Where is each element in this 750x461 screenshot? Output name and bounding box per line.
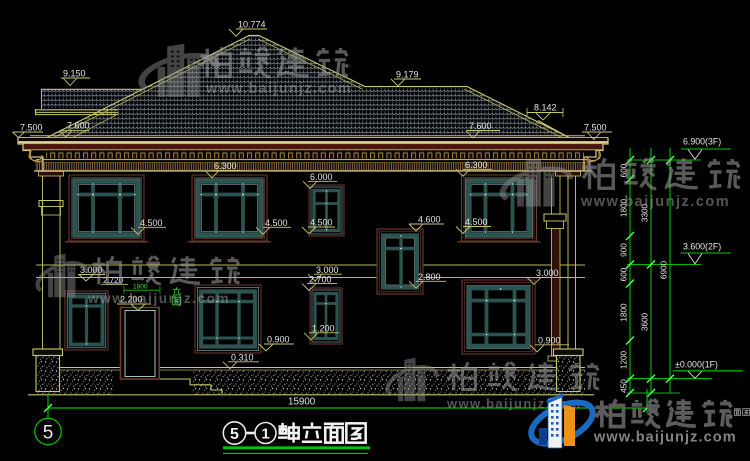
svg-text:9.150: 9.150	[63, 68, 86, 78]
svg-text:1800: 1800	[620, 303, 629, 322]
svg-text:1: 1	[261, 425, 269, 442]
svg-text:4.600: 4.600	[418, 215, 441, 225]
svg-text:4.500: 4.500	[310, 218, 333, 228]
svg-text:6900: 6900	[660, 260, 669, 279]
svg-text:7.500: 7.500	[584, 123, 607, 133]
svg-text:6.900(3F): 6.900(3F)	[683, 137, 721, 147]
svg-text:6.000: 6.000	[310, 172, 333, 182]
svg-text:3.600(2F): 3.600(2F)	[683, 242, 721, 252]
svg-text:7.600: 7.600	[67, 121, 90, 131]
svg-text:www.baijunjz.com: www.baijunjz.com	[205, 81, 352, 97]
svg-text:5: 5	[230, 426, 239, 443]
svg-text:1800: 1800	[133, 284, 148, 291]
svg-text:4.500: 4.500	[265, 218, 288, 228]
svg-text:0.310: 0.310	[231, 352, 254, 362]
svg-text:www.baijunjz.com: www.baijunjz.com	[580, 194, 730, 210]
svg-text:6.300: 6.300	[465, 160, 488, 170]
svg-text:8.142: 8.142	[534, 103, 557, 113]
svg-text:15900: 15900	[288, 397, 316, 408]
svg-text:1.200: 1.200	[312, 323, 335, 333]
svg-text:4.500: 4.500	[465, 217, 488, 227]
svg-text:1200: 1200	[620, 350, 629, 369]
svg-text:0.900: 0.900	[267, 335, 290, 345]
svg-text:5: 5	[43, 423, 54, 444]
svg-text:7.600: 7.600	[469, 121, 492, 131]
svg-text:3.000: 3.000	[536, 268, 559, 278]
svg-text:900: 900	[620, 243, 629, 257]
svg-text:3.000: 3.000	[316, 265, 339, 275]
svg-text:7.500: 7.500	[20, 123, 43, 133]
svg-text:2.800: 2.800	[418, 272, 441, 282]
svg-text:www.baijunjz.com: www.baijunjz.com	[593, 430, 737, 446]
svg-text:6.300: 6.300	[214, 161, 237, 171]
svg-text:10.774: 10.774	[238, 20, 266, 30]
svg-text:(: (	[729, 409, 732, 419]
svg-text:2.700: 2.700	[309, 274, 332, 284]
svg-text:9.179: 9.179	[396, 70, 419, 80]
svg-text:0.900: 0.900	[538, 335, 561, 345]
svg-text:600: 600	[620, 267, 629, 281]
svg-text:4.500: 4.500	[140, 218, 163, 228]
svg-text:±0.000(1F): ±0.000(1F)	[675, 360, 718, 370]
svg-text:www.baijunjz.com: www.baijunjz.com	[87, 291, 230, 306]
svg-text:3600: 3600	[641, 312, 650, 331]
svg-text:450: 450	[620, 379, 629, 393]
